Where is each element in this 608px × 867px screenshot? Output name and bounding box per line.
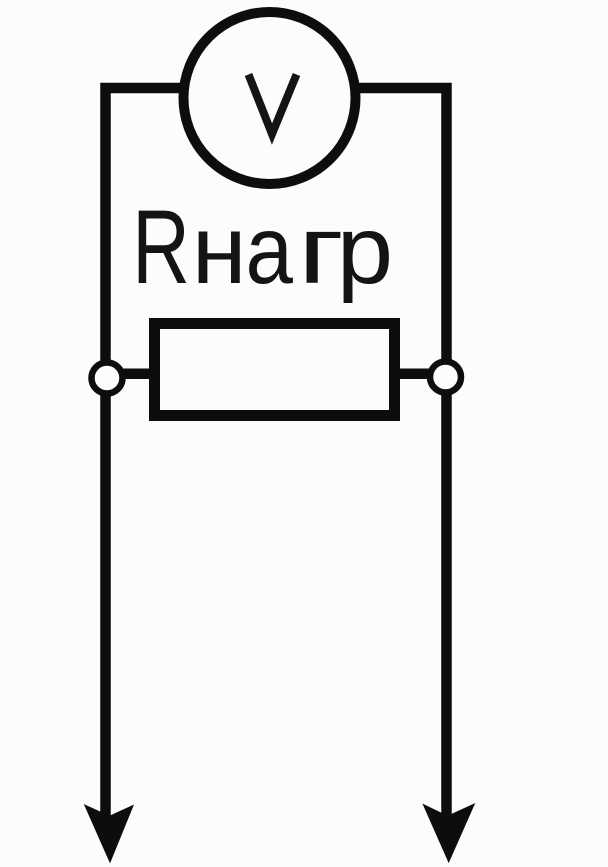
svg-text:р: р (337, 196, 393, 305)
svg-text:R: R (132, 187, 190, 305)
svg-text:а: а (246, 196, 294, 304)
svg-text:н: н (192, 195, 247, 304)
